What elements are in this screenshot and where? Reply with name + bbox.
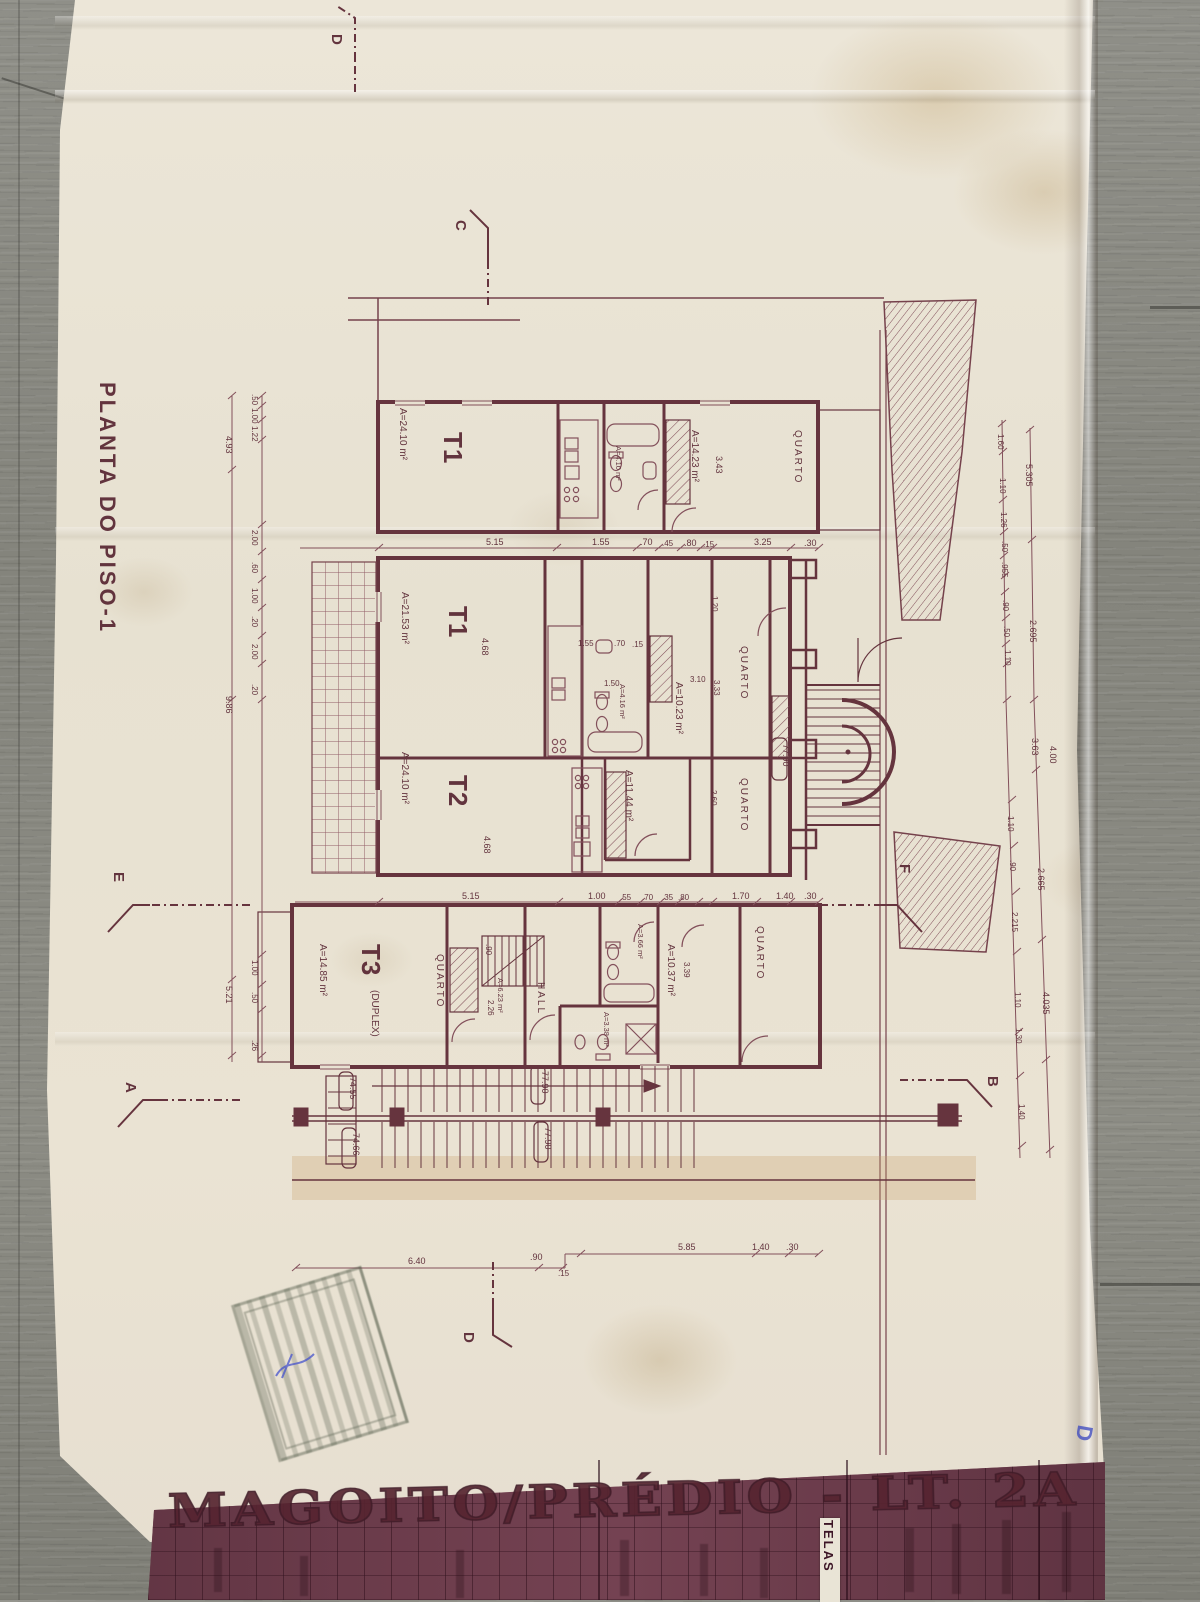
dim-label: 1.55: [592, 537, 610, 547]
dim-label: .80: [684, 538, 697, 548]
dim-label: .90: [484, 944, 493, 956]
dim-label: .15: [632, 640, 644, 649]
room-label-quarto: QUARTO: [434, 954, 445, 1008]
dim-label: 3.63: [1030, 738, 1040, 756]
dim-label: 1.10: [1006, 816, 1015, 832]
section-letter: D: [460, 1332, 477, 1343]
dim-label: .35: [662, 893, 674, 902]
dim-label: 5.85: [678, 1242, 696, 1252]
room-area: A=3.38 m²: [602, 1012, 611, 1047]
dim-label: 1.10: [1013, 992, 1022, 1008]
room-area: A=10.23 m²: [673, 682, 684, 735]
section-letter: C: [452, 220, 469, 231]
unit-label-t1a: T1: [438, 432, 468, 464]
room-label-quarto: QUARTO: [738, 778, 749, 832]
room-label-quarto: QUARTO: [738, 646, 749, 700]
unit-label-t2: T2: [443, 775, 473, 807]
unit-label-t1b: T1: [443, 606, 473, 638]
dim-label: 1.40: [776, 891, 794, 901]
dim-label: .30: [804, 891, 817, 901]
dim-label: .70: [614, 639, 626, 648]
room-area: A=11.44 m²: [623, 770, 634, 822]
dim-label: 1.60: [996, 434, 1005, 450]
dim-label: 2.60: [709, 790, 718, 806]
dim-label: .15: [703, 540, 715, 549]
room-label-hall: HALL: [535, 982, 546, 1015]
room-label-quarto: QUARTO: [754, 926, 765, 980]
dim-label: 4.68: [482, 836, 492, 854]
unit-label-t3: T3: [356, 944, 386, 976]
dim-label: .90: [530, 1252, 543, 1262]
dim-label: 4.00: [1048, 746, 1058, 764]
dim-label: 5.305: [1024, 464, 1034, 487]
dim-label: .45: [662, 539, 674, 548]
dim-label: 4.035: [1041, 992, 1051, 1015]
unit-area-t3: A=14.85 m²: [317, 944, 328, 997]
dim-label: 2.695: [1028, 620, 1038, 643]
dim-label: .50: [1000, 541, 1009, 553]
dim-label: .70: [642, 893, 654, 902]
dim-label: 3.25: [754, 537, 772, 547]
dim-label: .30: [786, 1242, 799, 1252]
room-area: A=4.10 m²: [614, 446, 623, 481]
dim-label: .50: [250, 394, 259, 406]
section-letter: A: [122, 1082, 139, 1093]
level-label: 74.66: [351, 1133, 361, 1156]
room-label-quarto: QUARTO: [792, 430, 803, 484]
dim-label: 5.21: [224, 986, 234, 1004]
section-letter: D: [328, 34, 345, 45]
unit-area-t2: A=24.10 m²: [399, 752, 410, 805]
section-letter: F: [896, 864, 913, 873]
dim-label: 2.00: [250, 644, 259, 660]
dim-label: 3.10: [690, 675, 706, 684]
dim-label: .90: [1008, 860, 1017, 872]
dim-label: 6.40: [408, 1256, 426, 1266]
dim-label: 3.33: [712, 680, 721, 696]
dim-label: 1.10: [998, 478, 1007, 494]
dim-label: 1.20: [710, 596, 719, 612]
dim-label: 1.40: [752, 1242, 770, 1252]
dim-label: .30: [804, 538, 817, 548]
dim-label: 4.68: [480, 638, 490, 656]
level-label: 77.90: [540, 1071, 550, 1094]
plan-ink: PLANTA DO PISO-1 T1 A=24.10 m² T1 A=21.5…: [0, 0, 1200, 1600]
plan-title: PLANTA DO PISO-1: [95, 382, 120, 634]
entry-staircase: [292, 1066, 976, 1200]
dim-label: 3.43: [714, 456, 724, 474]
main-staircase: [806, 560, 902, 880]
blue-pen-mark: [272, 1348, 332, 1388]
dim-label: 2.215: [1010, 912, 1019, 933]
unit-area-t1b: A=21.53 m²: [399, 592, 410, 645]
dim-label: 1.55: [578, 639, 594, 648]
dim-label: .70: [640, 537, 653, 547]
dim-label: .15: [558, 1269, 570, 1278]
dim-label: .20: [250, 616, 259, 628]
dim-label: 3.39: [682, 962, 691, 978]
dim-label: 1.40: [1017, 1104, 1026, 1120]
level-label: 77.90: [781, 744, 791, 767]
dim-label: 1.22: [250, 426, 259, 442]
room-area: A=6.23 m²: [496, 978, 505, 1013]
dim-label: 5.15: [486, 537, 504, 547]
dim-label: 2.26: [486, 1000, 495, 1016]
dim-label: 9.86: [224, 696, 234, 714]
dim-label: 1.50: [604, 679, 620, 688]
dim-label: 5.15: [462, 891, 480, 901]
dim-label: .80: [678, 893, 690, 902]
level-label: 74.55: [348, 1077, 358, 1100]
dim-label: 2.00: [250, 530, 259, 546]
dim-label: .20: [250, 684, 259, 696]
room-area: A=10.37 m²: [665, 944, 676, 997]
section-letter: B: [984, 1076, 1001, 1087]
project-title: MAGOITO/PRÉDIO - LT. 2A: [167, 1461, 1080, 1538]
dim-label: .90: [1001, 600, 1010, 612]
dim-label: .955: [1000, 562, 1009, 578]
room-area: A=14.23 m²: [689, 430, 700, 483]
dim-label: 1.00: [250, 588, 259, 604]
dim-label: .50: [250, 992, 259, 1004]
dim-label: 1.00: [588, 891, 606, 901]
dim-label: 1.30: [1014, 1028, 1023, 1044]
dim-label: 4.93: [224, 436, 234, 454]
dim-label: 1.00: [250, 960, 259, 976]
dim-label: 1.00: [250, 408, 259, 424]
dim-label: .50: [1002, 626, 1011, 638]
unit-area-t1a: A=24.10 m²: [397, 408, 408, 461]
dim-label: 1.10: [1003, 650, 1012, 666]
photo-of-floorplan: { "sheet": { "plan_title": "PLANTA DO PI…: [0, 0, 1200, 1600]
room-area: A=3.66 m²: [636, 924, 645, 959]
section-letter: E: [110, 872, 127, 882]
dim-label: 1.70: [732, 891, 750, 901]
unit-suffix-t3: (DUPLEX): [369, 990, 380, 1037]
wing-top-walls: [378, 402, 880, 532]
terrace-grid: [312, 562, 376, 873]
dim-label: .60: [250, 562, 259, 574]
dim-label: .55: [620, 893, 632, 902]
dim-label: .26: [250, 1040, 259, 1052]
room-area: A=4.16 m²: [618, 684, 627, 719]
dim-label: 1.26: [999, 512, 1008, 528]
level-label: 77.90: [543, 1127, 553, 1150]
dim-label: 2.665: [1036, 868, 1046, 891]
